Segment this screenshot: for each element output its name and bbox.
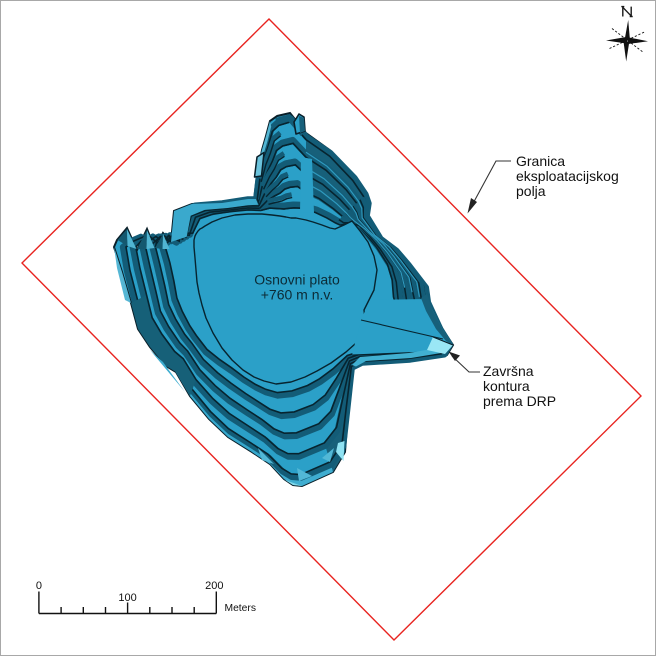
- svg-text:+760 m n.v.: +760 m n.v.: [261, 287, 334, 303]
- svg-text:100: 100: [118, 592, 136, 604]
- svg-text:Meters: Meters: [225, 603, 256, 614]
- svg-text:200: 200: [205, 580, 223, 592]
- svg-text:Osnovni plato: Osnovni plato: [254, 272, 340, 288]
- svg-text:0: 0: [36, 580, 42, 592]
